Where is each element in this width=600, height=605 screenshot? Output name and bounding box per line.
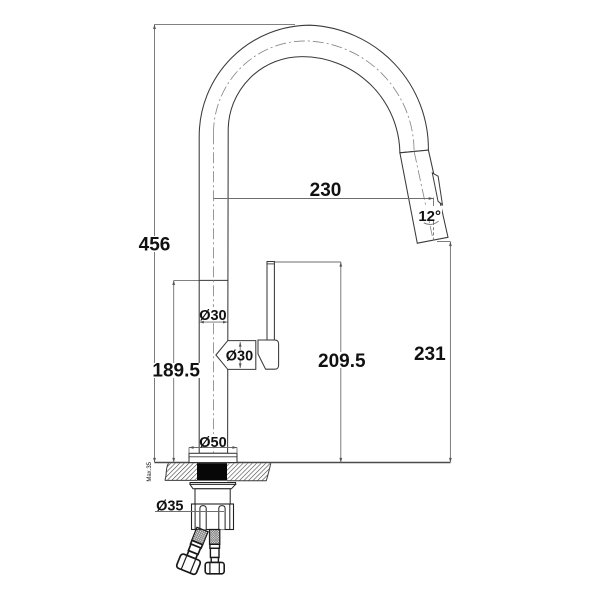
svg-text:189.5: 189.5 [152,361,200,382]
svg-text:Max.35: Max.35 [147,461,153,481]
svg-text:Ø35: Ø35 [156,499,183,515]
svg-text:209.5: 209.5 [318,351,366,372]
svg-text:12°: 12° [418,208,441,225]
svg-text:Ø30: Ø30 [199,308,226,324]
svg-text:Ø50: Ø50 [199,435,226,451]
svg-text:230: 230 [310,180,342,201]
svg-text:231: 231 [414,344,446,365]
svg-text:456: 456 [139,235,171,256]
svg-text:Ø30: Ø30 [226,349,253,365]
